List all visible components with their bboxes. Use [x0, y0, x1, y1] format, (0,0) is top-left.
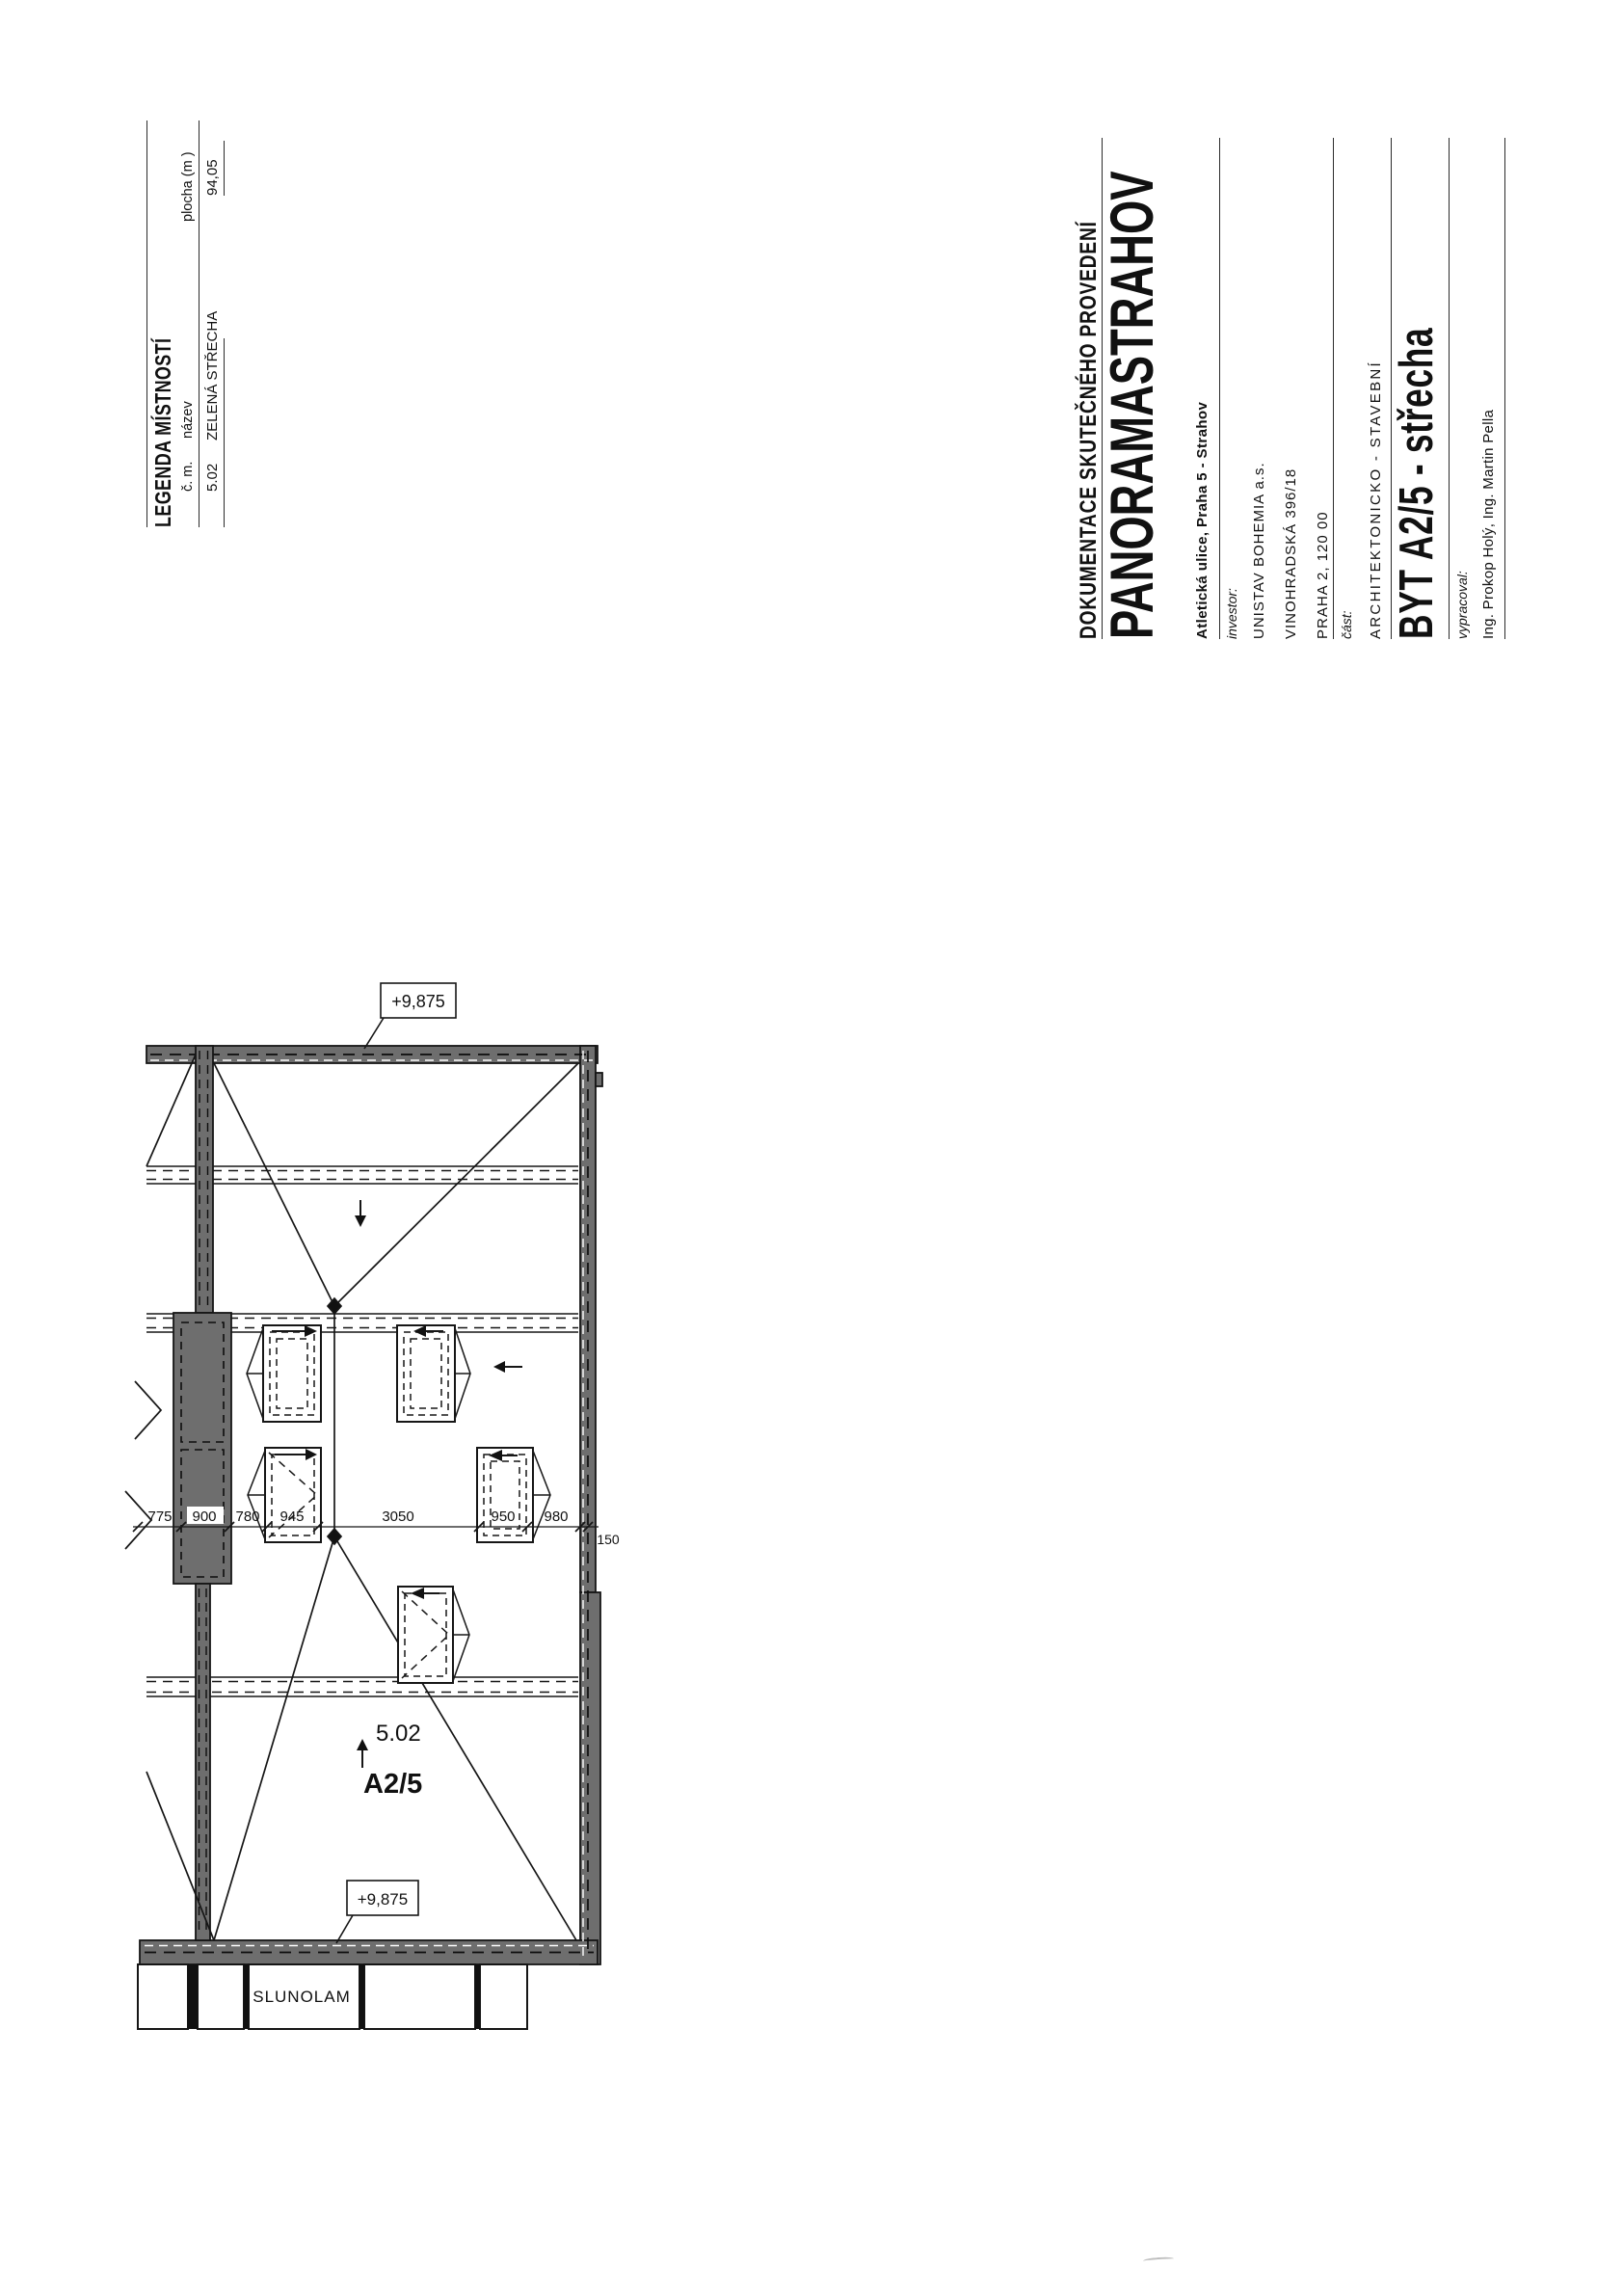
chimney-block	[173, 1313, 231, 1584]
level-value-top: +9,875	[391, 992, 445, 1011]
room-number: 5.02	[376, 1721, 421, 1747]
roof-plan: 775 900 780 945 3050 950 980 150 5.02 A2…	[0, 0, 1623, 2296]
unit-label: A2/5	[363, 1769, 422, 1800]
arrow-down-icon	[355, 1215, 366, 1227]
dim-945: 945	[279, 1508, 304, 1525]
cutoff-opening-chevron-1	[135, 1381, 161, 1439]
louver-label: SLUNOLAM	[253, 1988, 351, 2006]
dim-900: 900	[192, 1508, 216, 1525]
skylights	[247, 1325, 550, 1683]
drawing-sheet: LEGENDA MÍSTNOSTÍ č. m. název plocha (m …	[0, 0, 1623, 2296]
wall-right-nub	[596, 1073, 602, 1086]
roof-apex-marker-lower	[328, 1529, 341, 1544]
skylight-5	[398, 1587, 469, 1683]
dim-780: 780	[235, 1508, 259, 1525]
chimney-wall-upper	[196, 1046, 213, 1313]
skylight-3	[248, 1448, 321, 1542]
skylight-4	[477, 1448, 550, 1542]
chimney-wall-lower	[196, 1584, 210, 1940]
dim-980: 980	[544, 1508, 568, 1525]
dim-3050: 3050	[382, 1508, 413, 1525]
skylight-2	[397, 1325, 470, 1422]
level-value-bottom: +9,875	[358, 1890, 408, 1909]
arrow-up-icon	[357, 1739, 368, 1750]
skylight-1	[247, 1325, 321, 1422]
dim-wall-150: 150	[597, 1532, 620, 1547]
dim-775: 775	[147, 1508, 172, 1525]
dim-950: 950	[491, 1508, 515, 1525]
arrow-left-icon	[493, 1361, 505, 1373]
